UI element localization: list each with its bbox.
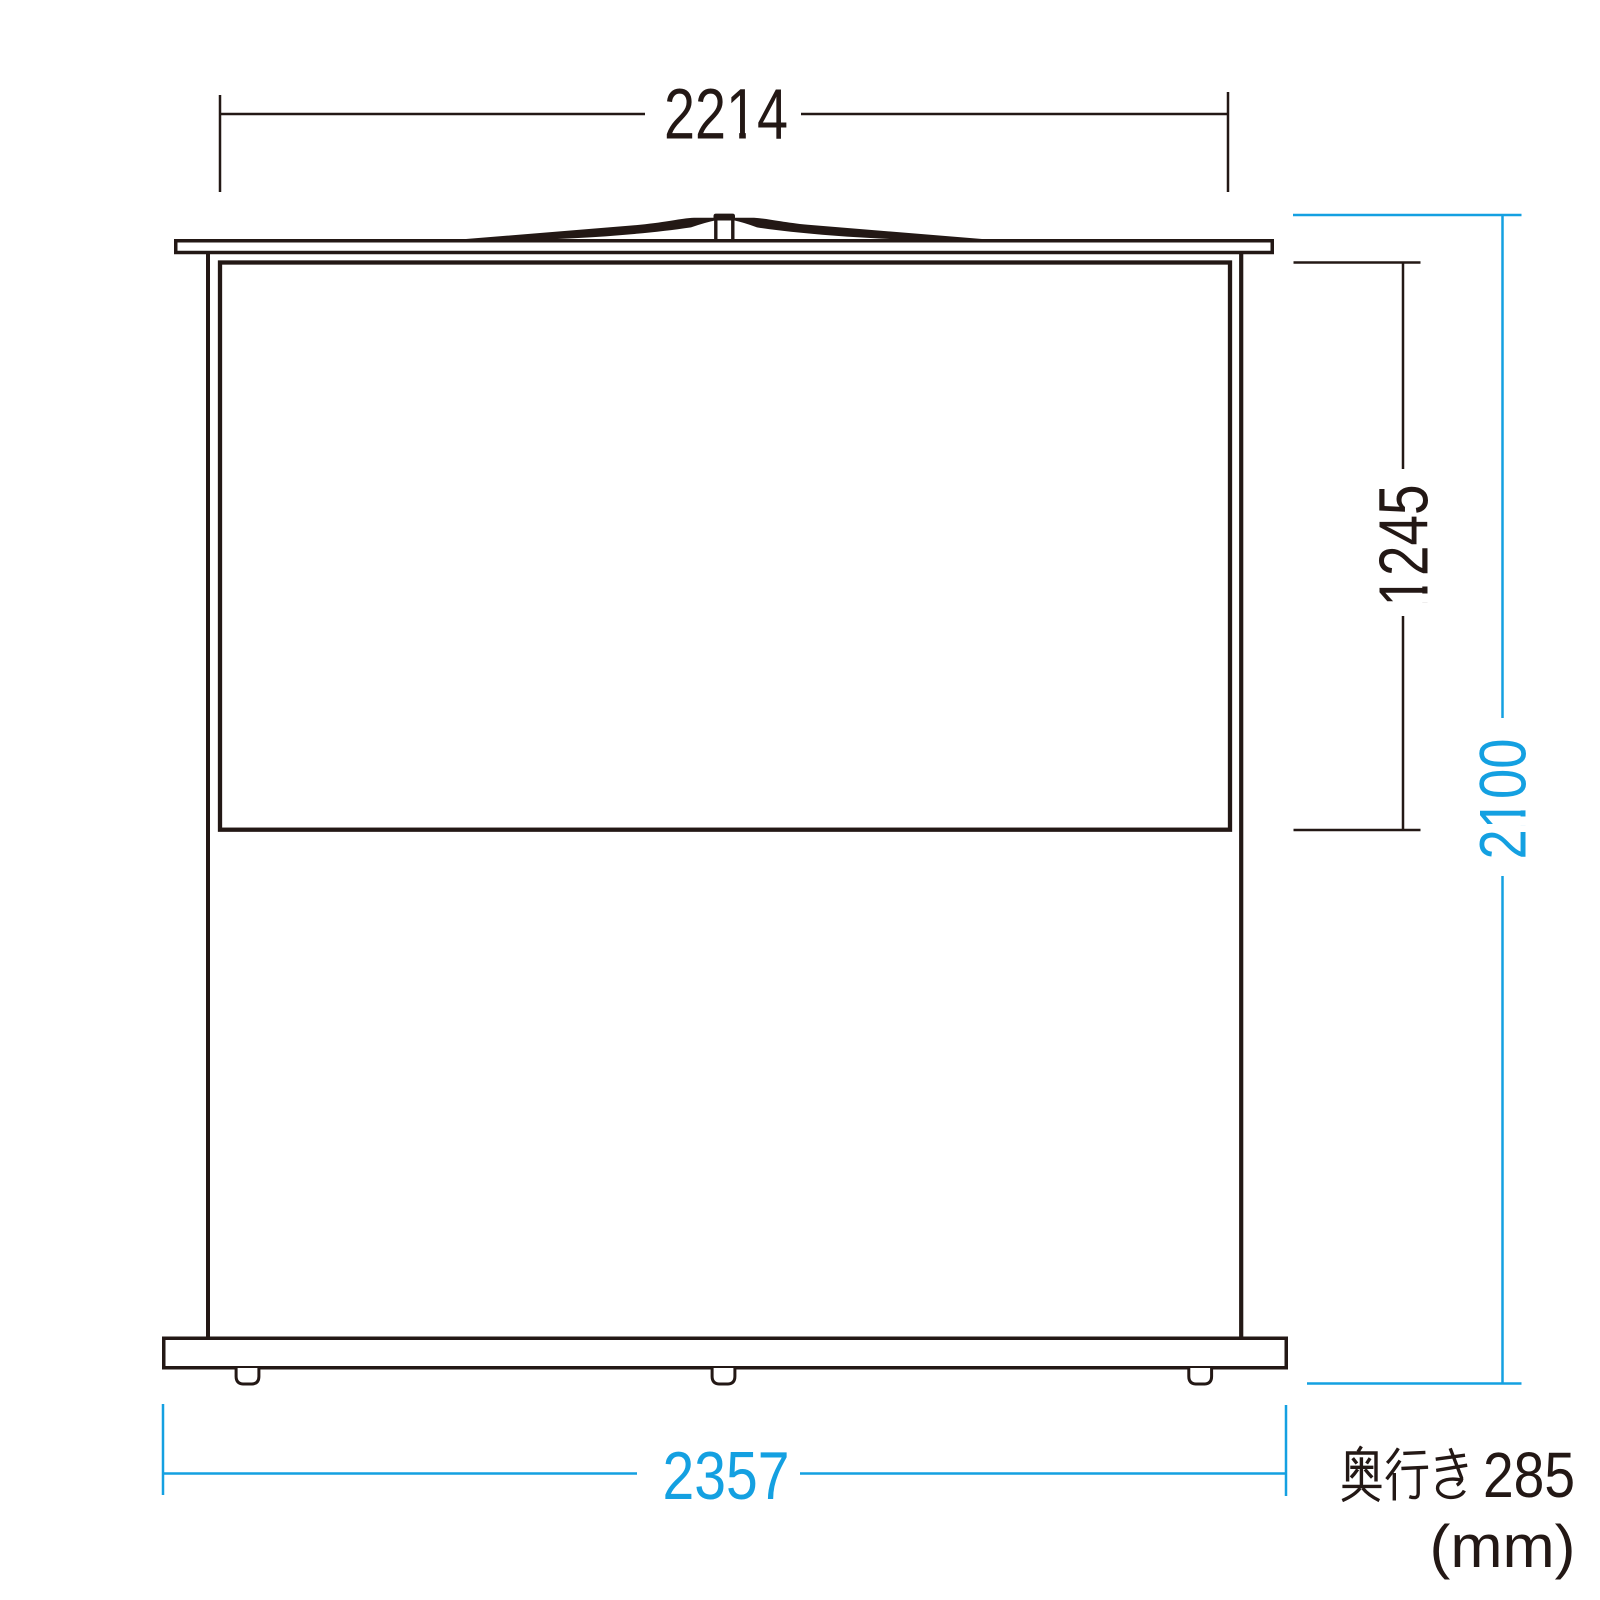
svg-text:1245: 1245 xyxy=(1365,485,1443,607)
svg-text:285: 285 xyxy=(1483,1439,1575,1511)
svg-text:2357: 2357 xyxy=(663,1438,790,1514)
svg-text:2100: 2100 xyxy=(1467,739,1540,860)
svg-text:(mm): (mm) xyxy=(1430,1513,1576,1580)
svg-text:2214: 2214 xyxy=(664,76,788,155)
